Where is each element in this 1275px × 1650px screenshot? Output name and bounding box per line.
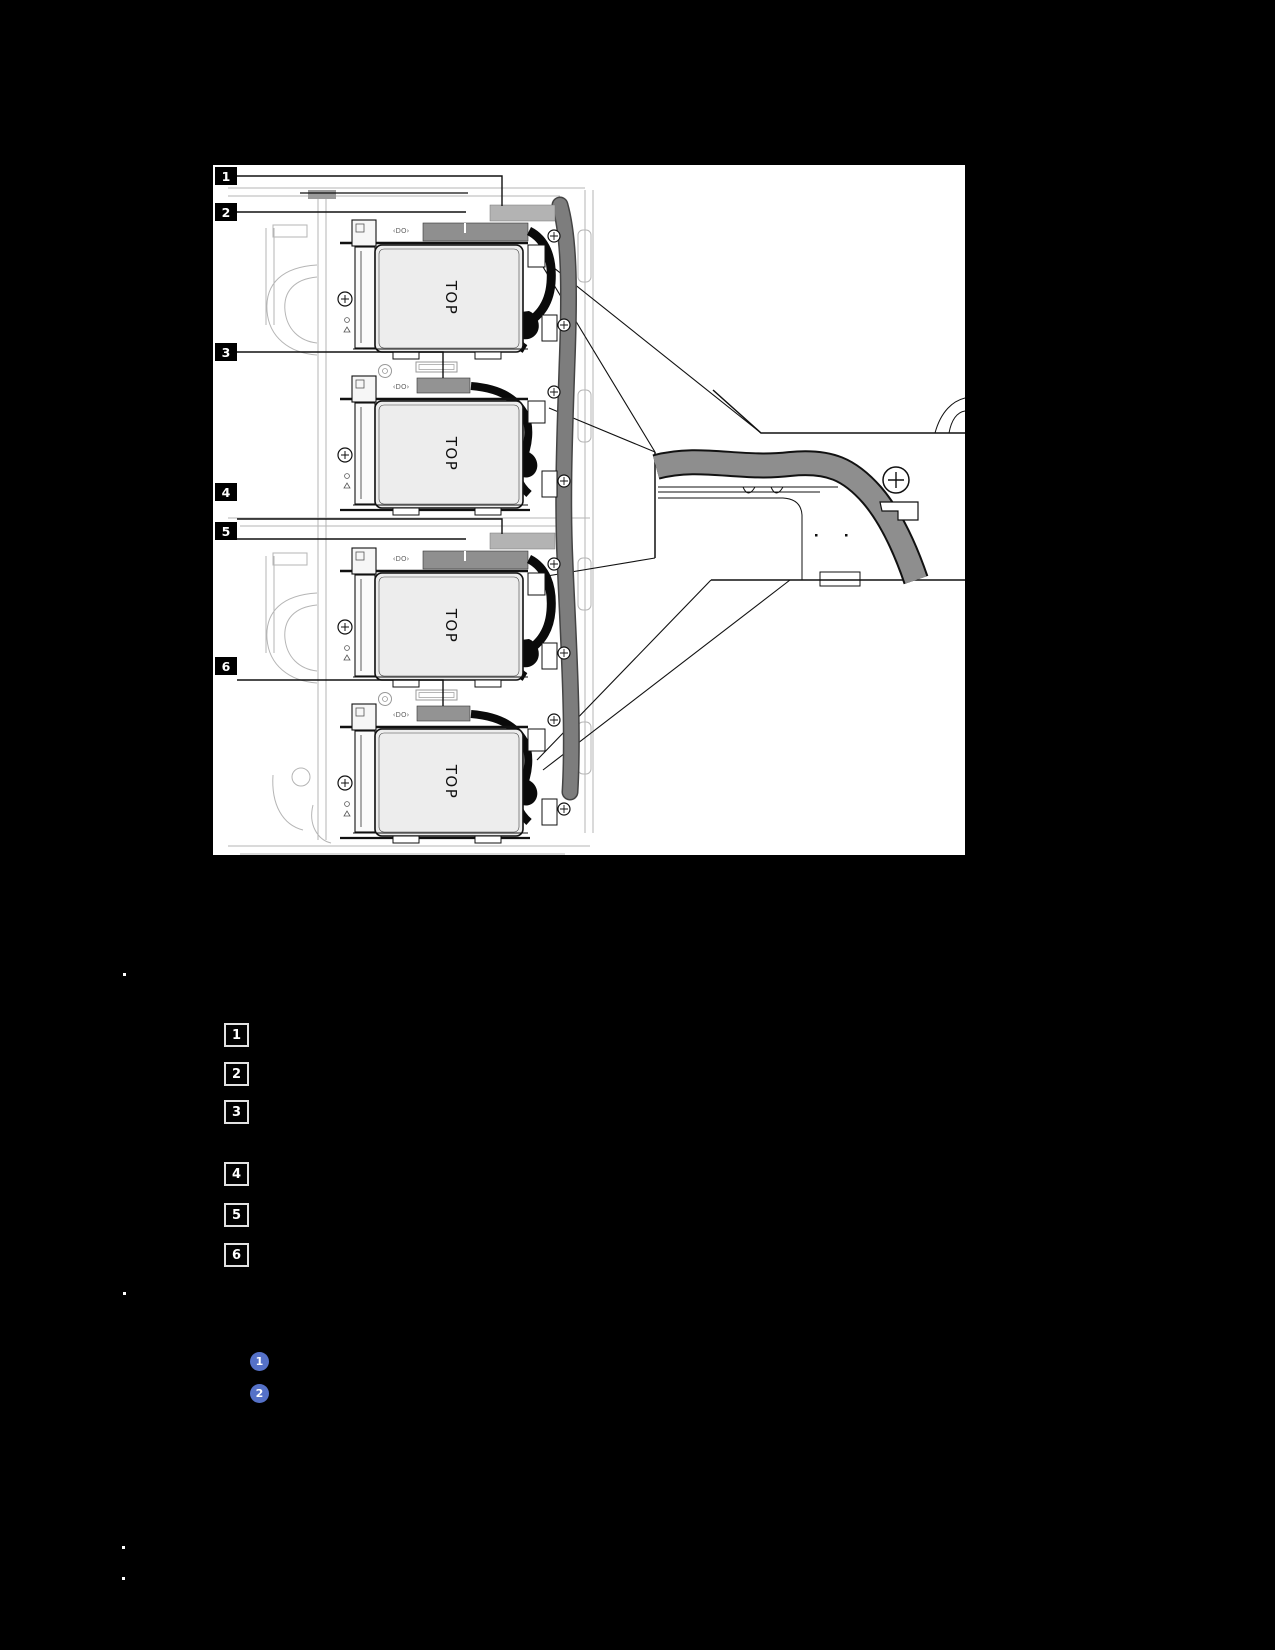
callout-4: 4 bbox=[222, 485, 231, 500]
callout-2: 2 bbox=[222, 205, 231, 220]
legend-label-3: 3 bbox=[232, 1106, 241, 1119]
step-badge-2: 2 bbox=[250, 1384, 269, 1403]
legend-item-3: 3 bbox=[224, 1100, 249, 1124]
margin-dot bbox=[123, 973, 126, 976]
legend-item-1: 1 bbox=[224, 1023, 249, 1047]
step-badge-1: 1 bbox=[250, 1352, 269, 1371]
legend-item-6: 6 bbox=[224, 1243, 249, 1267]
legend-label-2: 2 bbox=[232, 1068, 241, 1081]
margin-dot bbox=[122, 1577, 125, 1580]
legend-item-4: 4 bbox=[224, 1162, 249, 1186]
legend-item-5: 5 bbox=[224, 1203, 249, 1227]
callout-5: 5 bbox=[222, 524, 231, 539]
step-badge-1-label: 1 bbox=[256, 1356, 264, 1367]
callout-1: 1 bbox=[222, 169, 231, 184]
callout-6: 6 bbox=[222, 659, 231, 674]
legend-label-1: 1 bbox=[232, 1029, 241, 1042]
figure-container: TOP ‹DO› bbox=[213, 165, 965, 855]
legend-label-6: 6 bbox=[232, 1249, 241, 1262]
legend-label-4: 4 bbox=[232, 1168, 241, 1181]
legend-item-2: 2 bbox=[224, 1062, 249, 1086]
step-badge-2-label: 2 bbox=[256, 1388, 264, 1399]
callout-3: 3 bbox=[222, 345, 231, 360]
document-page: TOP ‹DO› bbox=[0, 0, 1275, 1650]
legend-label-5: 5 bbox=[232, 1209, 241, 1222]
margin-dot bbox=[123, 1292, 126, 1295]
margin-dot bbox=[122, 1546, 125, 1549]
drive-cable-routing-diagram: TOP ‹DO› bbox=[213, 165, 965, 855]
